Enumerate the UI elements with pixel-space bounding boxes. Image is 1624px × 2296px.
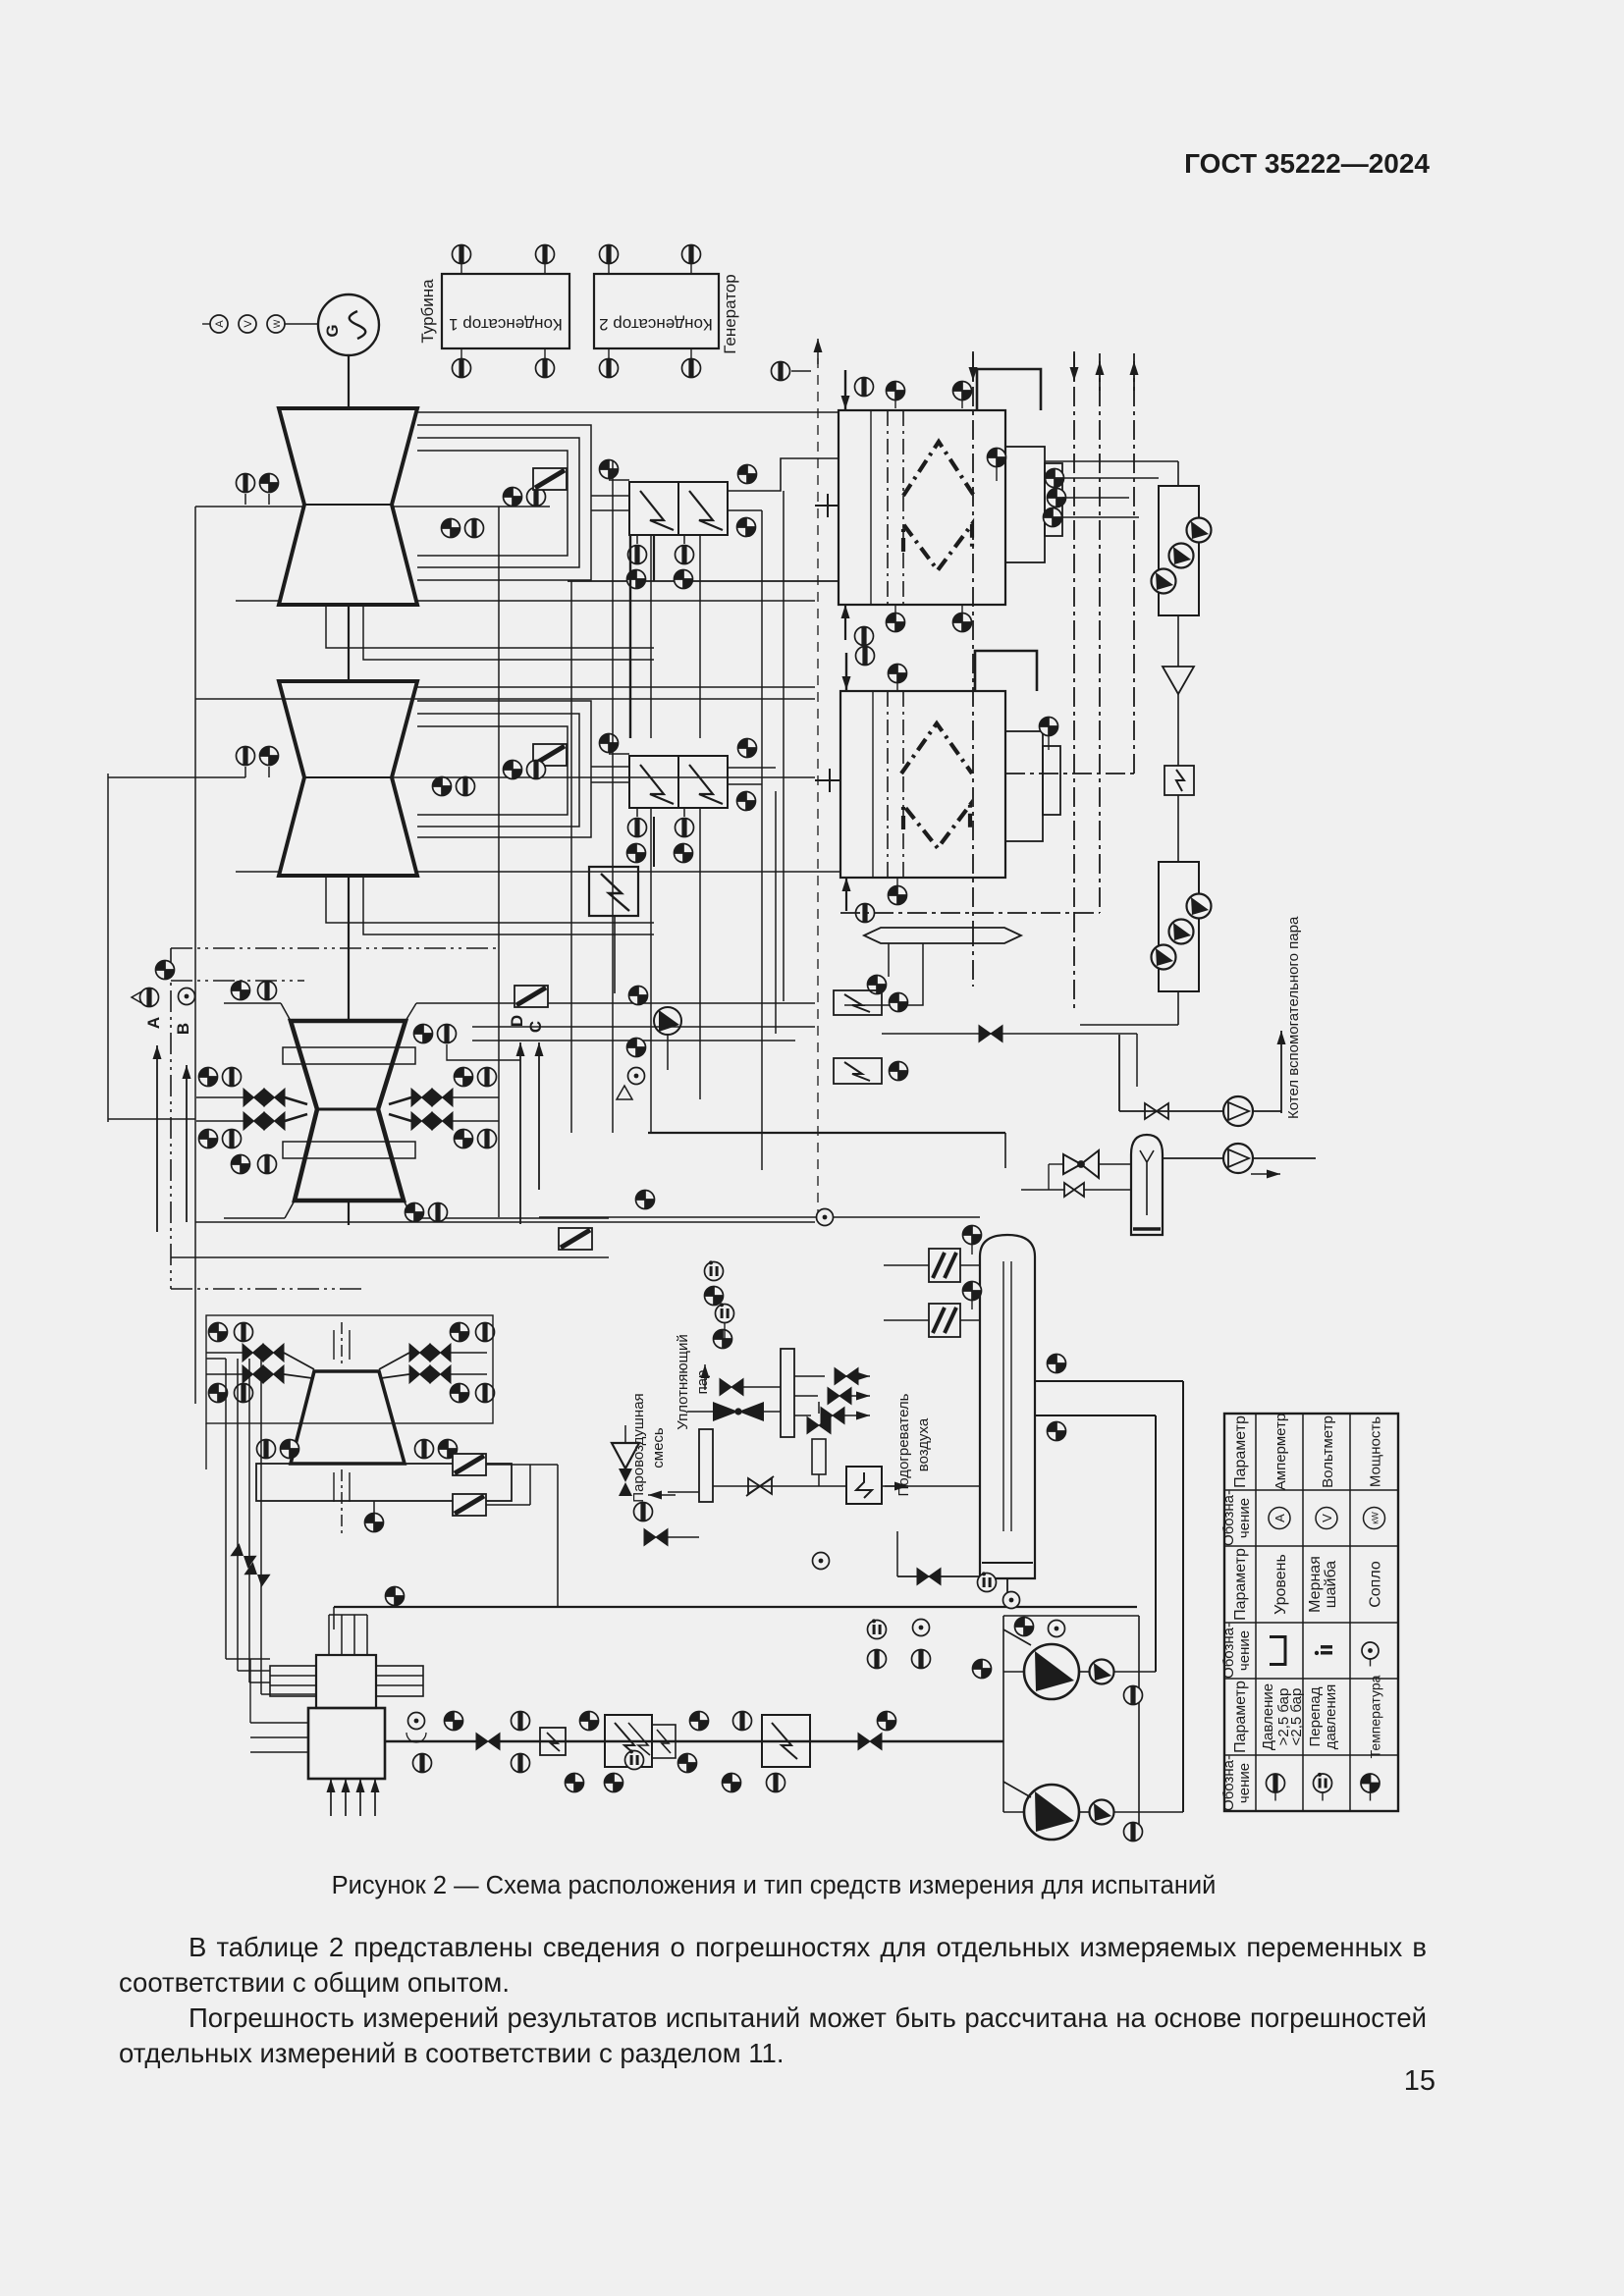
svg-text:шайба: шайба bbox=[1323, 1561, 1339, 1608]
svg-text:Котел вспомогательного пара: Котел вспомогательного пара bbox=[1285, 916, 1302, 1119]
svg-text:А: А bbox=[1272, 1514, 1287, 1522]
svg-text:Обозна-: Обозна- bbox=[1220, 1755, 1237, 1811]
svg-text:Генератор: Генератор bbox=[721, 274, 739, 353]
svg-text:Мерная: Мерная bbox=[1307, 1556, 1324, 1613]
svg-text:D: D bbox=[508, 1015, 526, 1027]
svg-text:Уровень: Уровень bbox=[1272, 1554, 1289, 1615]
svg-text:смесь: смесь bbox=[650, 1427, 667, 1468]
svg-text:давления: давления bbox=[1323, 1684, 1339, 1750]
svg-text:воздуха: воздуха bbox=[915, 1417, 932, 1471]
svg-text:чение: чение bbox=[1236, 1763, 1253, 1803]
svg-text:Паровоздушная: Паровоздушная bbox=[630, 1393, 647, 1502]
svg-text:Турбина: Турбина bbox=[418, 279, 437, 344]
svg-text:Амперметр: Амперметр bbox=[1272, 1414, 1289, 1491]
svg-text:кW: кW bbox=[1371, 1512, 1380, 1524]
svg-text:Вольтметр: Вольтметр bbox=[1320, 1415, 1336, 1488]
svg-text:Конденсатор 1: Конденсатор 1 bbox=[449, 315, 563, 334]
svg-text:W: W bbox=[272, 319, 282, 328]
svg-text:Уплотняющий: Уплотняющий bbox=[675, 1334, 691, 1430]
svg-text:пар: пар bbox=[694, 1370, 711, 1395]
svg-text:A: A bbox=[214, 320, 226, 328]
svg-text:Мощность: Мощность bbox=[1368, 1416, 1384, 1487]
svg-text:А: А bbox=[144, 1017, 163, 1029]
svg-text:Параметр: Параметр bbox=[1232, 1415, 1249, 1488]
svg-text:Давление: Давление bbox=[1260, 1683, 1276, 1750]
svg-text:Подогреватель: Подогреватель bbox=[895, 1393, 912, 1496]
svg-text:Конденсатор 2: Конденсатор 2 bbox=[599, 315, 713, 334]
svg-text:чение: чение bbox=[1236, 1498, 1253, 1538]
svg-text:Параметр: Параметр bbox=[1232, 1681, 1249, 1753]
svg-text:V: V bbox=[243, 320, 254, 328]
svg-text:Температура: Температура bbox=[1368, 1675, 1383, 1758]
svg-text:Параметр: Параметр bbox=[1232, 1548, 1249, 1621]
svg-text:В: В bbox=[174, 1023, 192, 1035]
svg-text:Перепад: Перепад bbox=[1307, 1686, 1324, 1746]
svg-text:<2,5 бар: <2,5 бар bbox=[1288, 1688, 1305, 1746]
svg-text:Обозна-: Обозна- bbox=[1220, 1623, 1237, 1679]
svg-text:Обозна-: Обозна- bbox=[1220, 1490, 1237, 1546]
svg-text:чение: чение bbox=[1236, 1630, 1253, 1671]
svg-text:Сопло: Сопло bbox=[1368, 1561, 1384, 1608]
svg-text:G: G bbox=[323, 324, 342, 337]
svg-text:V: V bbox=[1320, 1514, 1334, 1522]
